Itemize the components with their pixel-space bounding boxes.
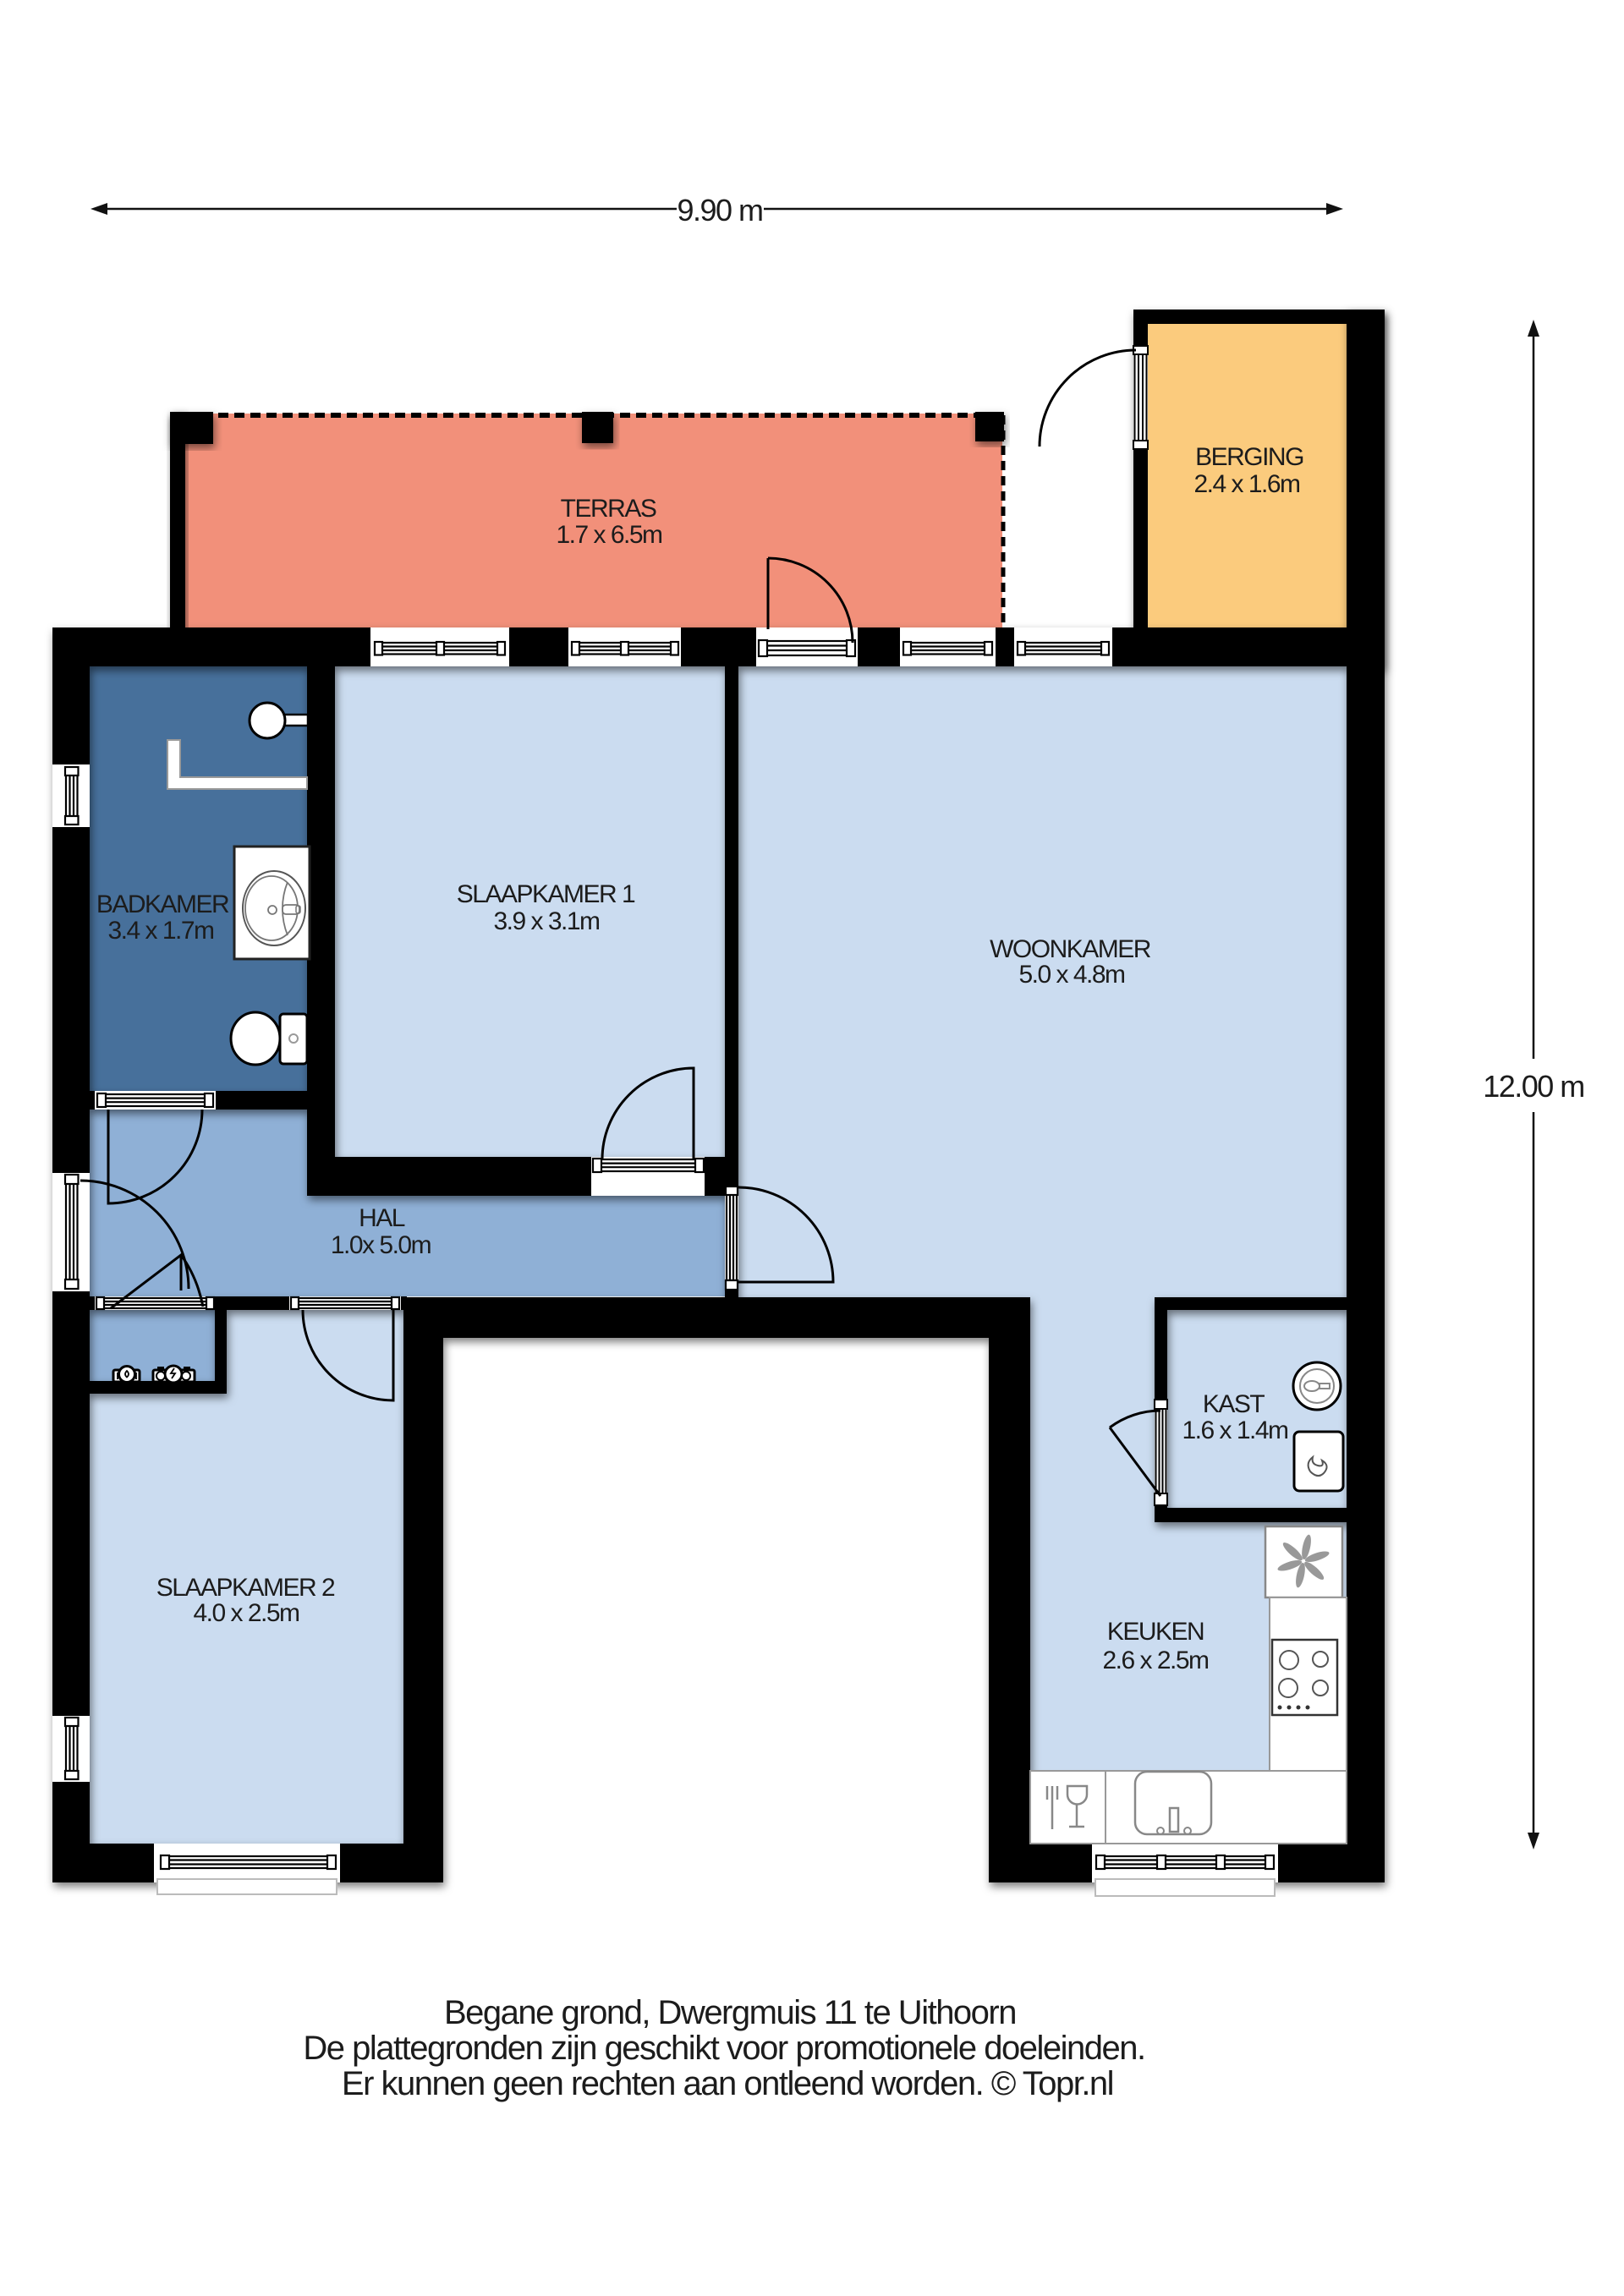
svg-text:9.90 m: 9.90 m [677,193,762,227]
svg-text:4.0 x 2.5m: 4.0 x 2.5m [193,1599,299,1627]
svg-text:3.9 x 3.1m: 3.9 x 3.1m [493,907,600,935]
svg-text:TERRAS: TERRAS [561,495,656,523]
svg-text:SLAAPKAMER 2: SLAAPKAMER 2 [156,1574,335,1602]
svg-text:1.6 x 1.4m: 1.6 x 1.4m [1182,1417,1288,1444]
svg-text:Begane grond, Dwergmuis 11 te: Begane grond, Dwergmuis 11 te Uithoorn [444,1994,1016,2031]
svg-text:HAL: HAL [359,1204,405,1232]
svg-text:3.4 x 1.7m: 3.4 x 1.7m [107,917,214,945]
svg-text:BADKAMER: BADKAMER [96,890,229,918]
svg-text:2.4 x 1.6m: 2.4 x 1.6m [1193,470,1300,498]
svg-text:1.7 x 6.5m: 1.7 x 6.5m [556,521,662,549]
svg-text:1.0x 5.0m: 1.0x 5.0m [331,1231,431,1259]
svg-text:BERGING: BERGING [1195,443,1303,471]
svg-text:KAST: KAST [1203,1390,1265,1418]
svg-text:SLAAPKAMER 1: SLAAPKAMER 1 [457,880,635,908]
svg-text:KEUKEN: KEUKEN [1107,1618,1204,1646]
svg-text:2.6 x 2.5m: 2.6 x 2.5m [1102,1647,1209,1674]
svg-text:De plattegronden zijn geschikt: De plattegronden zijn geschikt voor prom… [303,2030,1144,2067]
svg-text:5.0 x 4.8m: 5.0 x 4.8m [1018,961,1125,989]
svg-text:Er kunnen geen rechten aan ont: Er kunnen geen rechten aan ontleend word… [342,2065,1113,2102]
svg-text:WOONKAMER: WOONKAMER [990,935,1151,963]
svg-text:12.00 m: 12.00 m [1483,1069,1584,1104]
